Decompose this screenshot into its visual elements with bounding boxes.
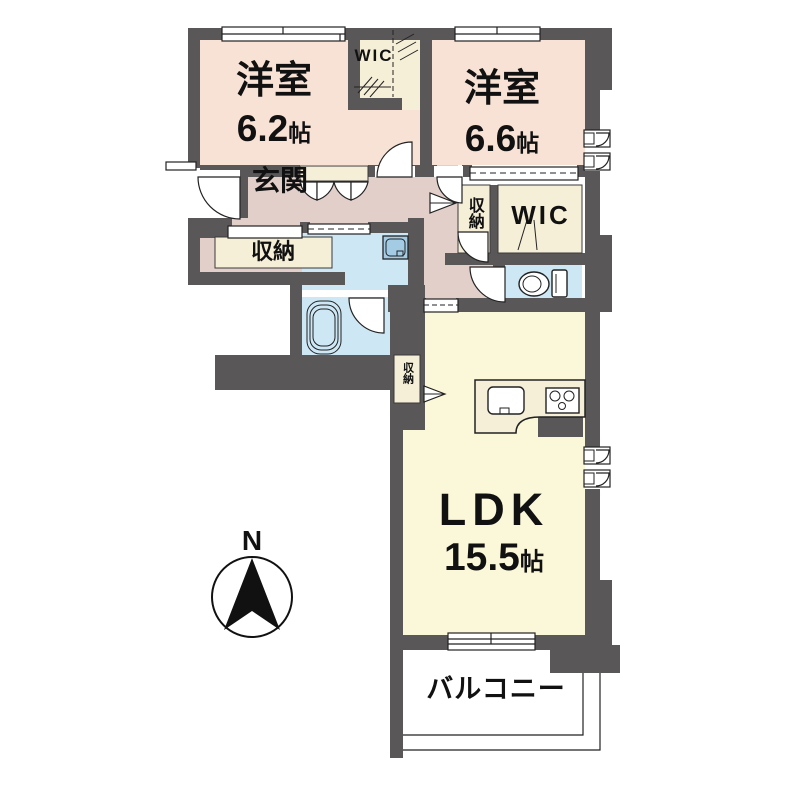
balcony-slider-icon [448, 633, 535, 650]
compass-needle-icon [224, 558, 280, 630]
compass-north-label: N [235, 526, 269, 555]
balcony-label: バルコニー [398, 675, 594, 703]
entrance-label: 玄関 [230, 166, 330, 195]
kitchen-sink-icon [488, 387, 524, 414]
ldk-name-label: LDK [414, 486, 574, 533]
window-top-2 [455, 27, 540, 41]
floor-plan: 洋室 6.2帖 洋室 6.6帖 LDK 15.5帖 玄関 WIC WIC 収納 … [0, 0, 800, 800]
wic-north-label: WIC [348, 47, 400, 65]
compass [212, 557, 292, 637]
stove-icon [546, 388, 579, 413]
storage-ldk-label: 収納 [401, 362, 413, 384]
bedroom1-size-label: 6.2帖 [204, 110, 344, 149]
toilet-icon [519, 270, 567, 297]
storage-east-label: 収納 [465, 197, 482, 229]
window-top-1 [222, 27, 345, 41]
bedroom1-name-label: 洋室 [204, 62, 344, 102]
washbasin-icon [383, 236, 408, 259]
bedroom2-name-label: 洋室 [432, 70, 572, 110]
wic-east-label: WIC [502, 202, 580, 229]
storage-entrance-door [228, 226, 302, 238]
ldk-size-label: 15.5帖 [414, 538, 574, 579]
room-ldk [403, 312, 585, 635]
bedroom2-size-label: 6.6帖 [432, 120, 572, 159]
storage-entrance-label: 収納 [238, 240, 308, 263]
porch-ledge [166, 162, 196, 170]
